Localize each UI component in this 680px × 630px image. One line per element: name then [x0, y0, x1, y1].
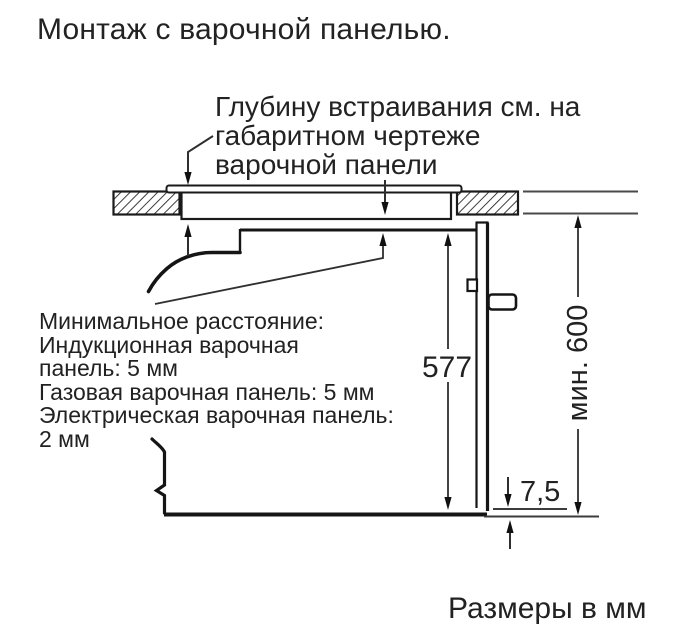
min-distance-note-line-1: Минимальное расстояние: [39, 310, 324, 334]
min-distance-note-line-6: 2 мм [39, 428, 90, 452]
oven-door-handle [489, 295, 517, 310]
installation-diagram-page: Монтаж с варочной панелью. Глубину встра… [0, 0, 680, 630]
hob-depth-callout-line-1: Глубину встраивания см. на [215, 92, 580, 121]
worktop-section-right-hatch [457, 192, 518, 215]
hob-depth-callout-line-3: варочной панели [215, 150, 438, 179]
hob-top-plate [167, 186, 462, 193]
oven-upper-break-line [149, 253, 241, 292]
dim-7-5-arrowhead-top [504, 494, 511, 507]
min-distance-note-line-4: Газовая варочная панель: 5 мм [39, 381, 375, 405]
min-distance-note-line-2: Индукционная варочная [39, 334, 299, 358]
hob-underside-arrowhead [184, 224, 191, 237]
worktop-section-left-hatch [114, 192, 180, 215]
min-distance-leader-line [155, 245, 383, 304]
dim-7-5-arrowhead-bottom [506, 520, 513, 533]
dim-600-arrowhead-top [574, 215, 581, 228]
dim-label-door-gap-7-5: 7,5 [520, 476, 560, 509]
dim-label-oven-height-577: 577 [419, 351, 475, 385]
min-distance-arrowhead [379, 233, 386, 246]
oven-lower-break-line [152, 439, 165, 513]
min-distance-note-line-5: Электрическая варочная панель: [39, 404, 394, 428]
dim-577-arrowhead-top [444, 233, 451, 246]
page-title: Монтаж с варочной панелью. [37, 13, 451, 47]
hob-depth-leader-line [188, 136, 213, 174]
min-distance-note-line-3: панель: 5 мм [39, 357, 178, 381]
hob-depth-callout-line-2: габаритном чертеже [215, 121, 480, 150]
hob-depth-arrowhead-left [184, 172, 191, 185]
oven-door-hinge-notch [468, 280, 478, 292]
dim-label-min-clearance-600: мин. 600 [562, 288, 594, 438]
dim-600-arrowhead-bottom [574, 502, 581, 515]
units-caption: Размеры в мм [448, 592, 647, 626]
dim-577-arrowhead-bottom [444, 497, 451, 510]
